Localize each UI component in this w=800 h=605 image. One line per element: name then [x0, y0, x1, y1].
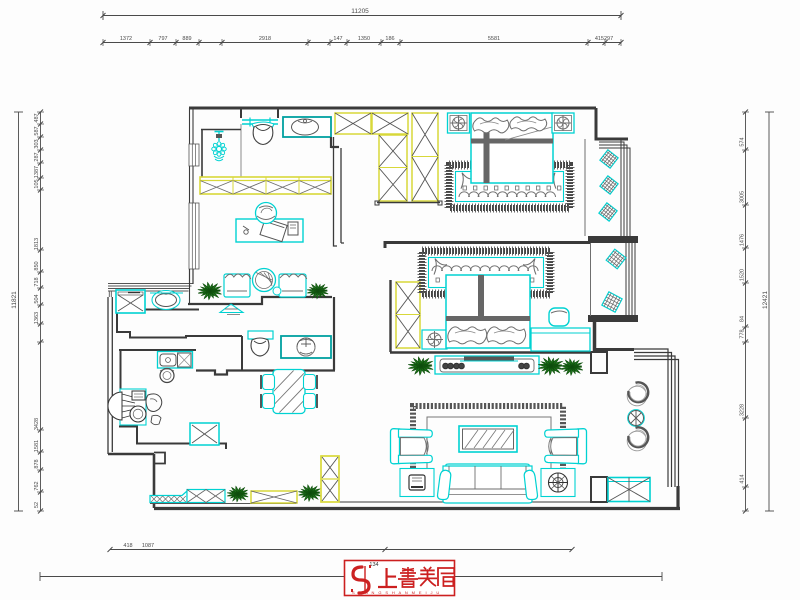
svg-text:850: 850	[34, 261, 40, 270]
svg-text:303: 303	[34, 139, 40, 148]
svg-text:878: 878	[34, 459, 40, 468]
svg-text:414: 414	[740, 474, 746, 483]
svg-text:105: 105	[34, 179, 40, 188]
svg-text:3228: 3228	[740, 404, 746, 416]
svg-text:778: 778	[740, 329, 746, 338]
svg-text:5581: 5581	[488, 36, 500, 42]
svg-text:12421: 12421	[762, 291, 769, 309]
svg-text:3428: 3428	[34, 418, 40, 430]
svg-text:415297: 415297	[595, 36, 613, 42]
svg-text:3005: 3005	[740, 191, 746, 203]
svg-text:S H A N G S H A N M E I J U: S H A N G S H A N M E I J U	[352, 590, 441, 595]
svg-text:1387: 1387	[34, 166, 40, 178]
svg-text:1372: 1372	[120, 36, 132, 42]
svg-text:1520: 1520	[740, 269, 746, 281]
svg-text:418: 418	[123, 543, 132, 549]
svg-text:504: 504	[34, 294, 40, 303]
svg-text:186: 186	[385, 36, 394, 42]
svg-text:889: 889	[182, 36, 191, 42]
svg-text:11205: 11205	[351, 8, 369, 15]
svg-text:1350: 1350	[358, 36, 370, 42]
svg-text:1476: 1476	[740, 234, 746, 246]
svg-text:52: 52	[34, 502, 40, 508]
svg-text:1813: 1813	[34, 238, 40, 250]
svg-text:762: 762	[34, 481, 40, 490]
svg-text:1581: 1581	[34, 440, 40, 452]
svg-text:1363: 1363	[34, 312, 40, 324]
svg-text:11821: 11821	[11, 291, 18, 309]
svg-text:147: 147	[333, 36, 342, 42]
svg-text:797: 797	[158, 36, 167, 42]
svg-text:2918: 2918	[259, 36, 271, 42]
svg-text:587: 587	[34, 126, 40, 135]
svg-text:487: 487	[34, 113, 40, 122]
svg-text:1087: 1087	[142, 543, 154, 549]
svg-text:84: 84	[740, 316, 746, 322]
svg-text:574: 574	[740, 137, 746, 146]
svg-text:718: 718	[34, 277, 40, 286]
svg-text:287: 287	[34, 152, 40, 161]
